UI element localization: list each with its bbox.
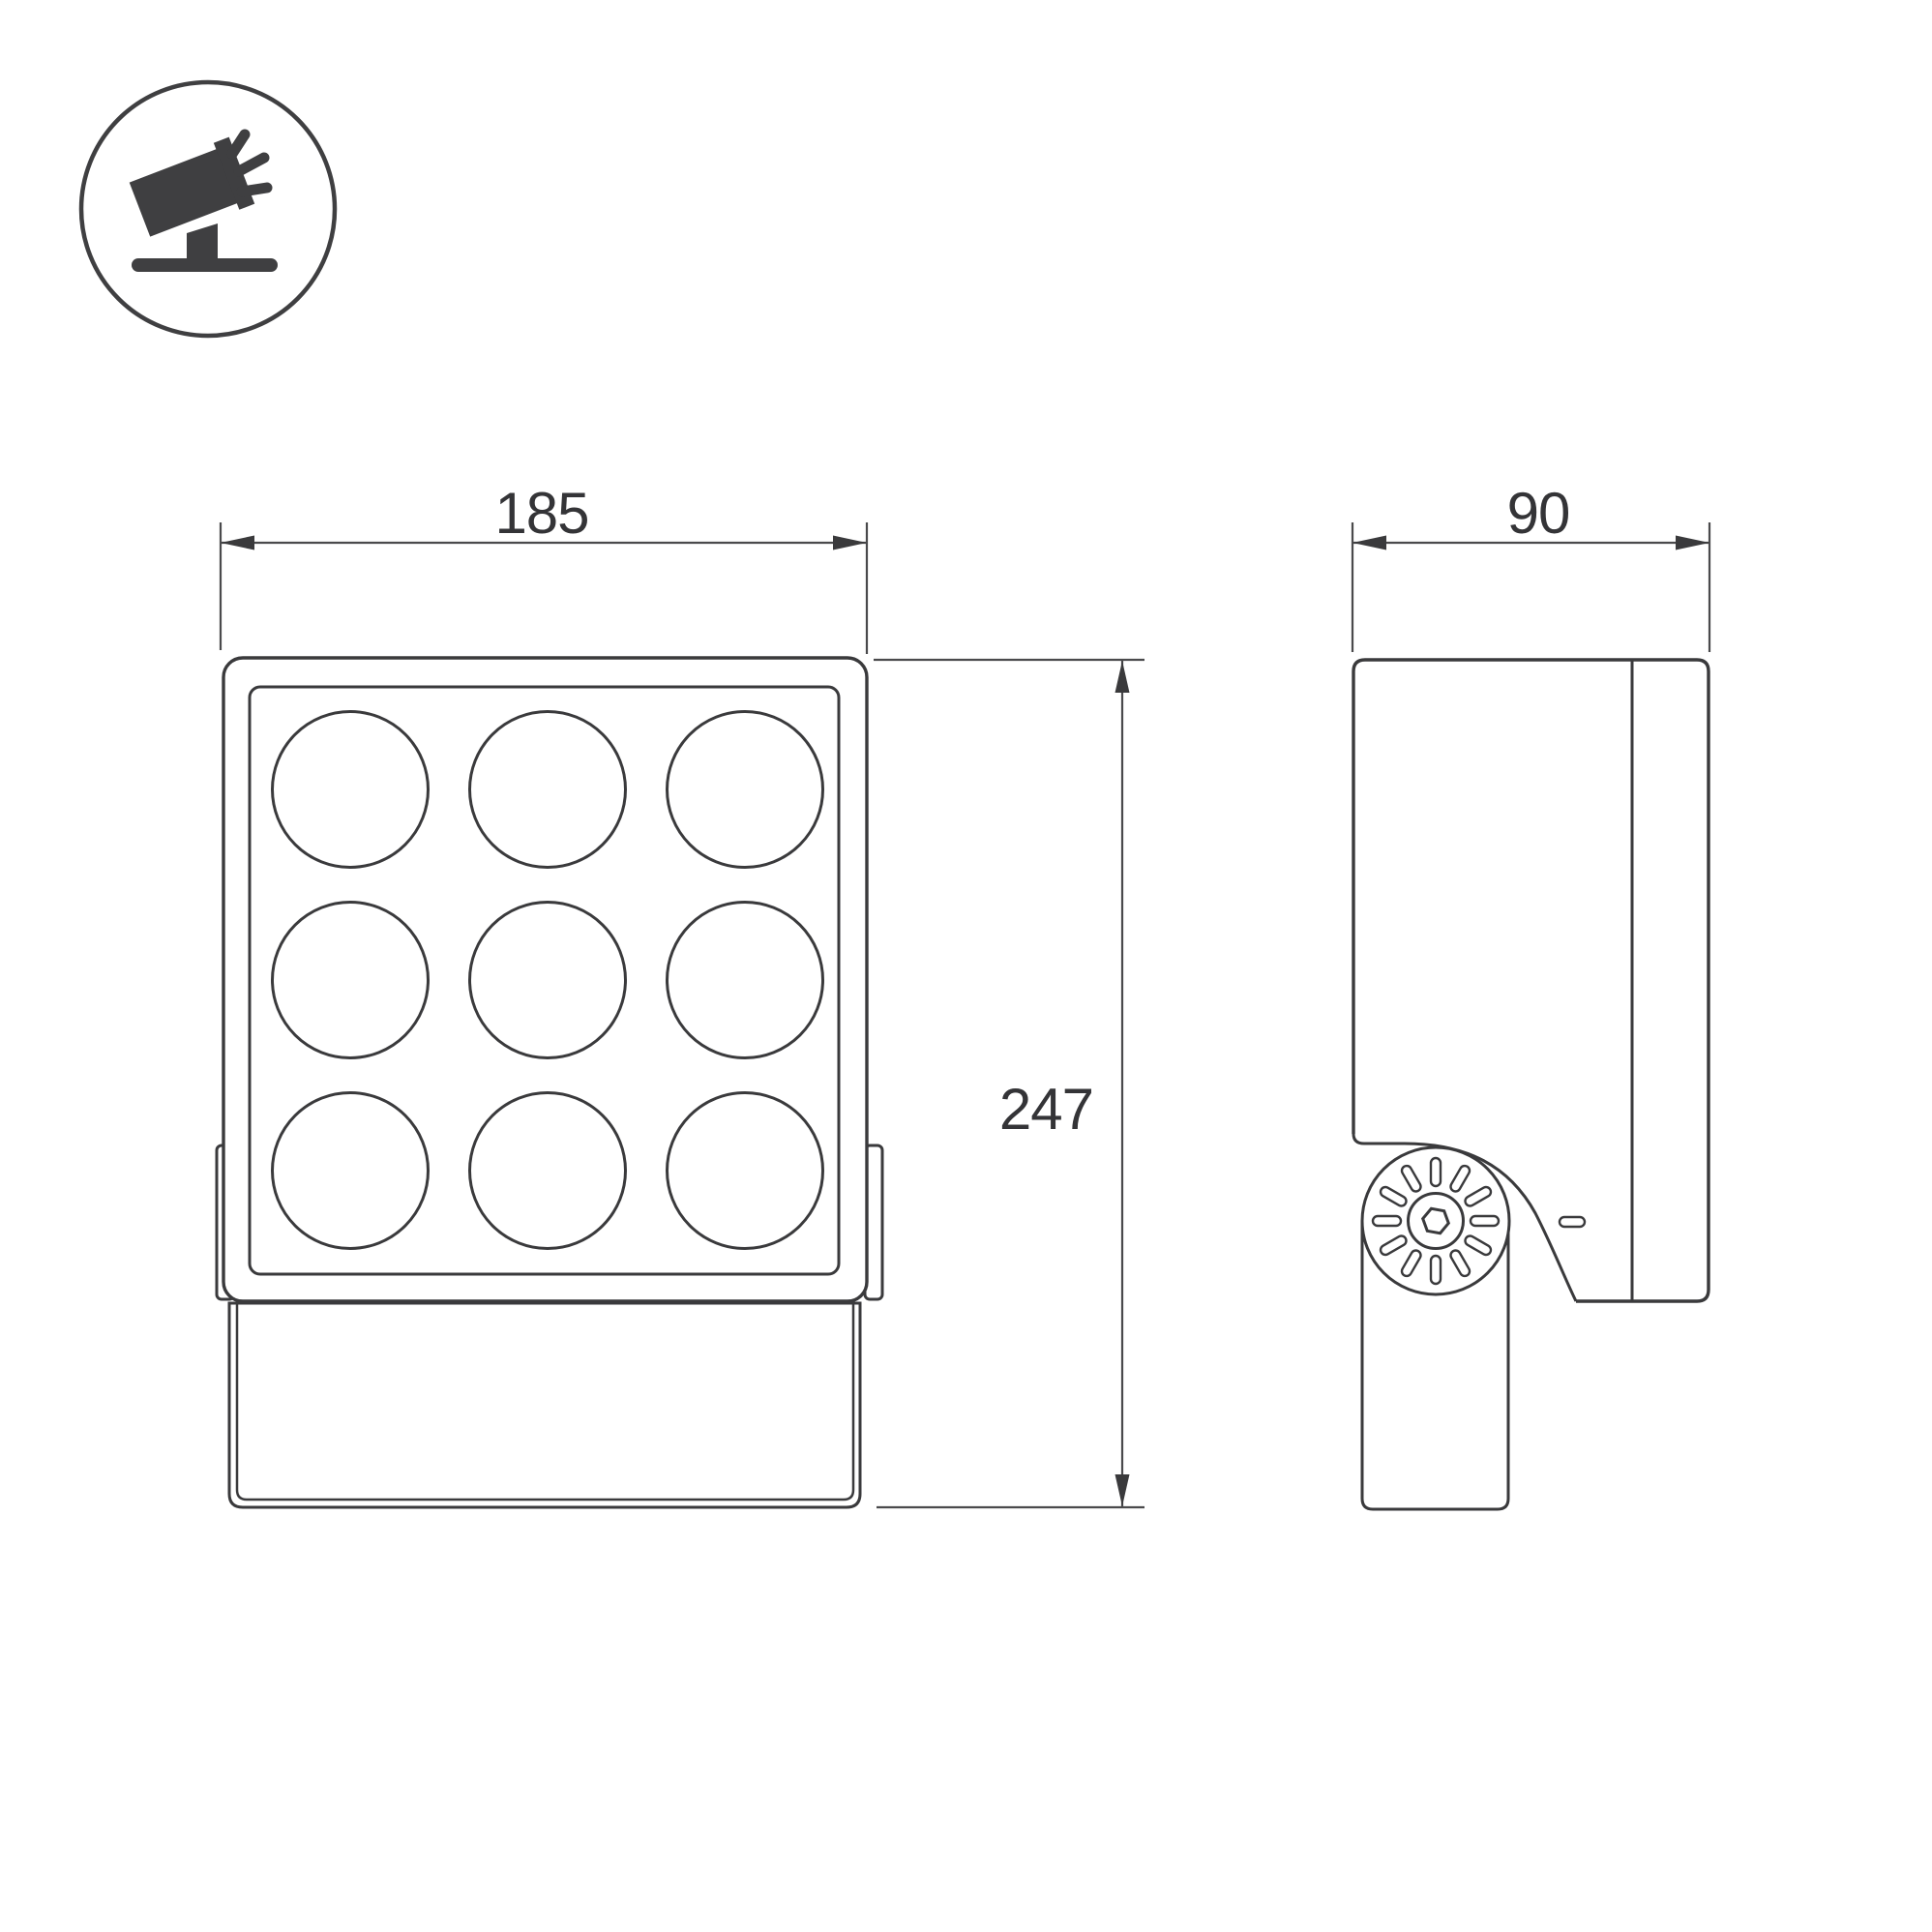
knob-slot xyxy=(1431,1256,1441,1284)
arrowhead-left xyxy=(1352,536,1386,550)
floodlight-dimension-drawing: 185 247 xyxy=(0,0,1932,1932)
set-screw-slot xyxy=(1560,1217,1585,1227)
depth-dimension-label: 90 xyxy=(1507,481,1570,546)
side-view xyxy=(1353,660,1709,1509)
adjustment-knob xyxy=(1362,1147,1509,1294)
dimension-247: 247 xyxy=(874,660,1144,1507)
light-ray xyxy=(242,188,267,192)
arrowhead-right xyxy=(1676,536,1709,550)
arrowhead-left xyxy=(221,536,254,550)
dimension-185: 185 xyxy=(221,481,867,654)
knob-slot xyxy=(1373,1216,1401,1226)
arrowhead-up xyxy=(1115,661,1130,693)
front-view xyxy=(217,658,882,1507)
bracket-base-outline xyxy=(229,1303,860,1507)
knob-slot xyxy=(1471,1216,1499,1226)
knob-slot xyxy=(1431,1158,1441,1186)
technical-drawing-page: 185 247 xyxy=(0,0,1932,1932)
aiming-icon xyxy=(81,82,335,336)
lamp-base-bar-shape xyxy=(132,258,278,272)
width-dimension-label: 185 xyxy=(494,481,588,546)
arrowhead-right xyxy=(833,536,867,550)
dimension-90: 90 xyxy=(1352,481,1709,652)
height-dimension-label: 247 xyxy=(999,1077,1093,1142)
front-panel-outline xyxy=(223,658,867,1301)
arrowhead-down xyxy=(1115,1474,1130,1506)
hex-socket-screw-icon xyxy=(1423,1208,1449,1233)
